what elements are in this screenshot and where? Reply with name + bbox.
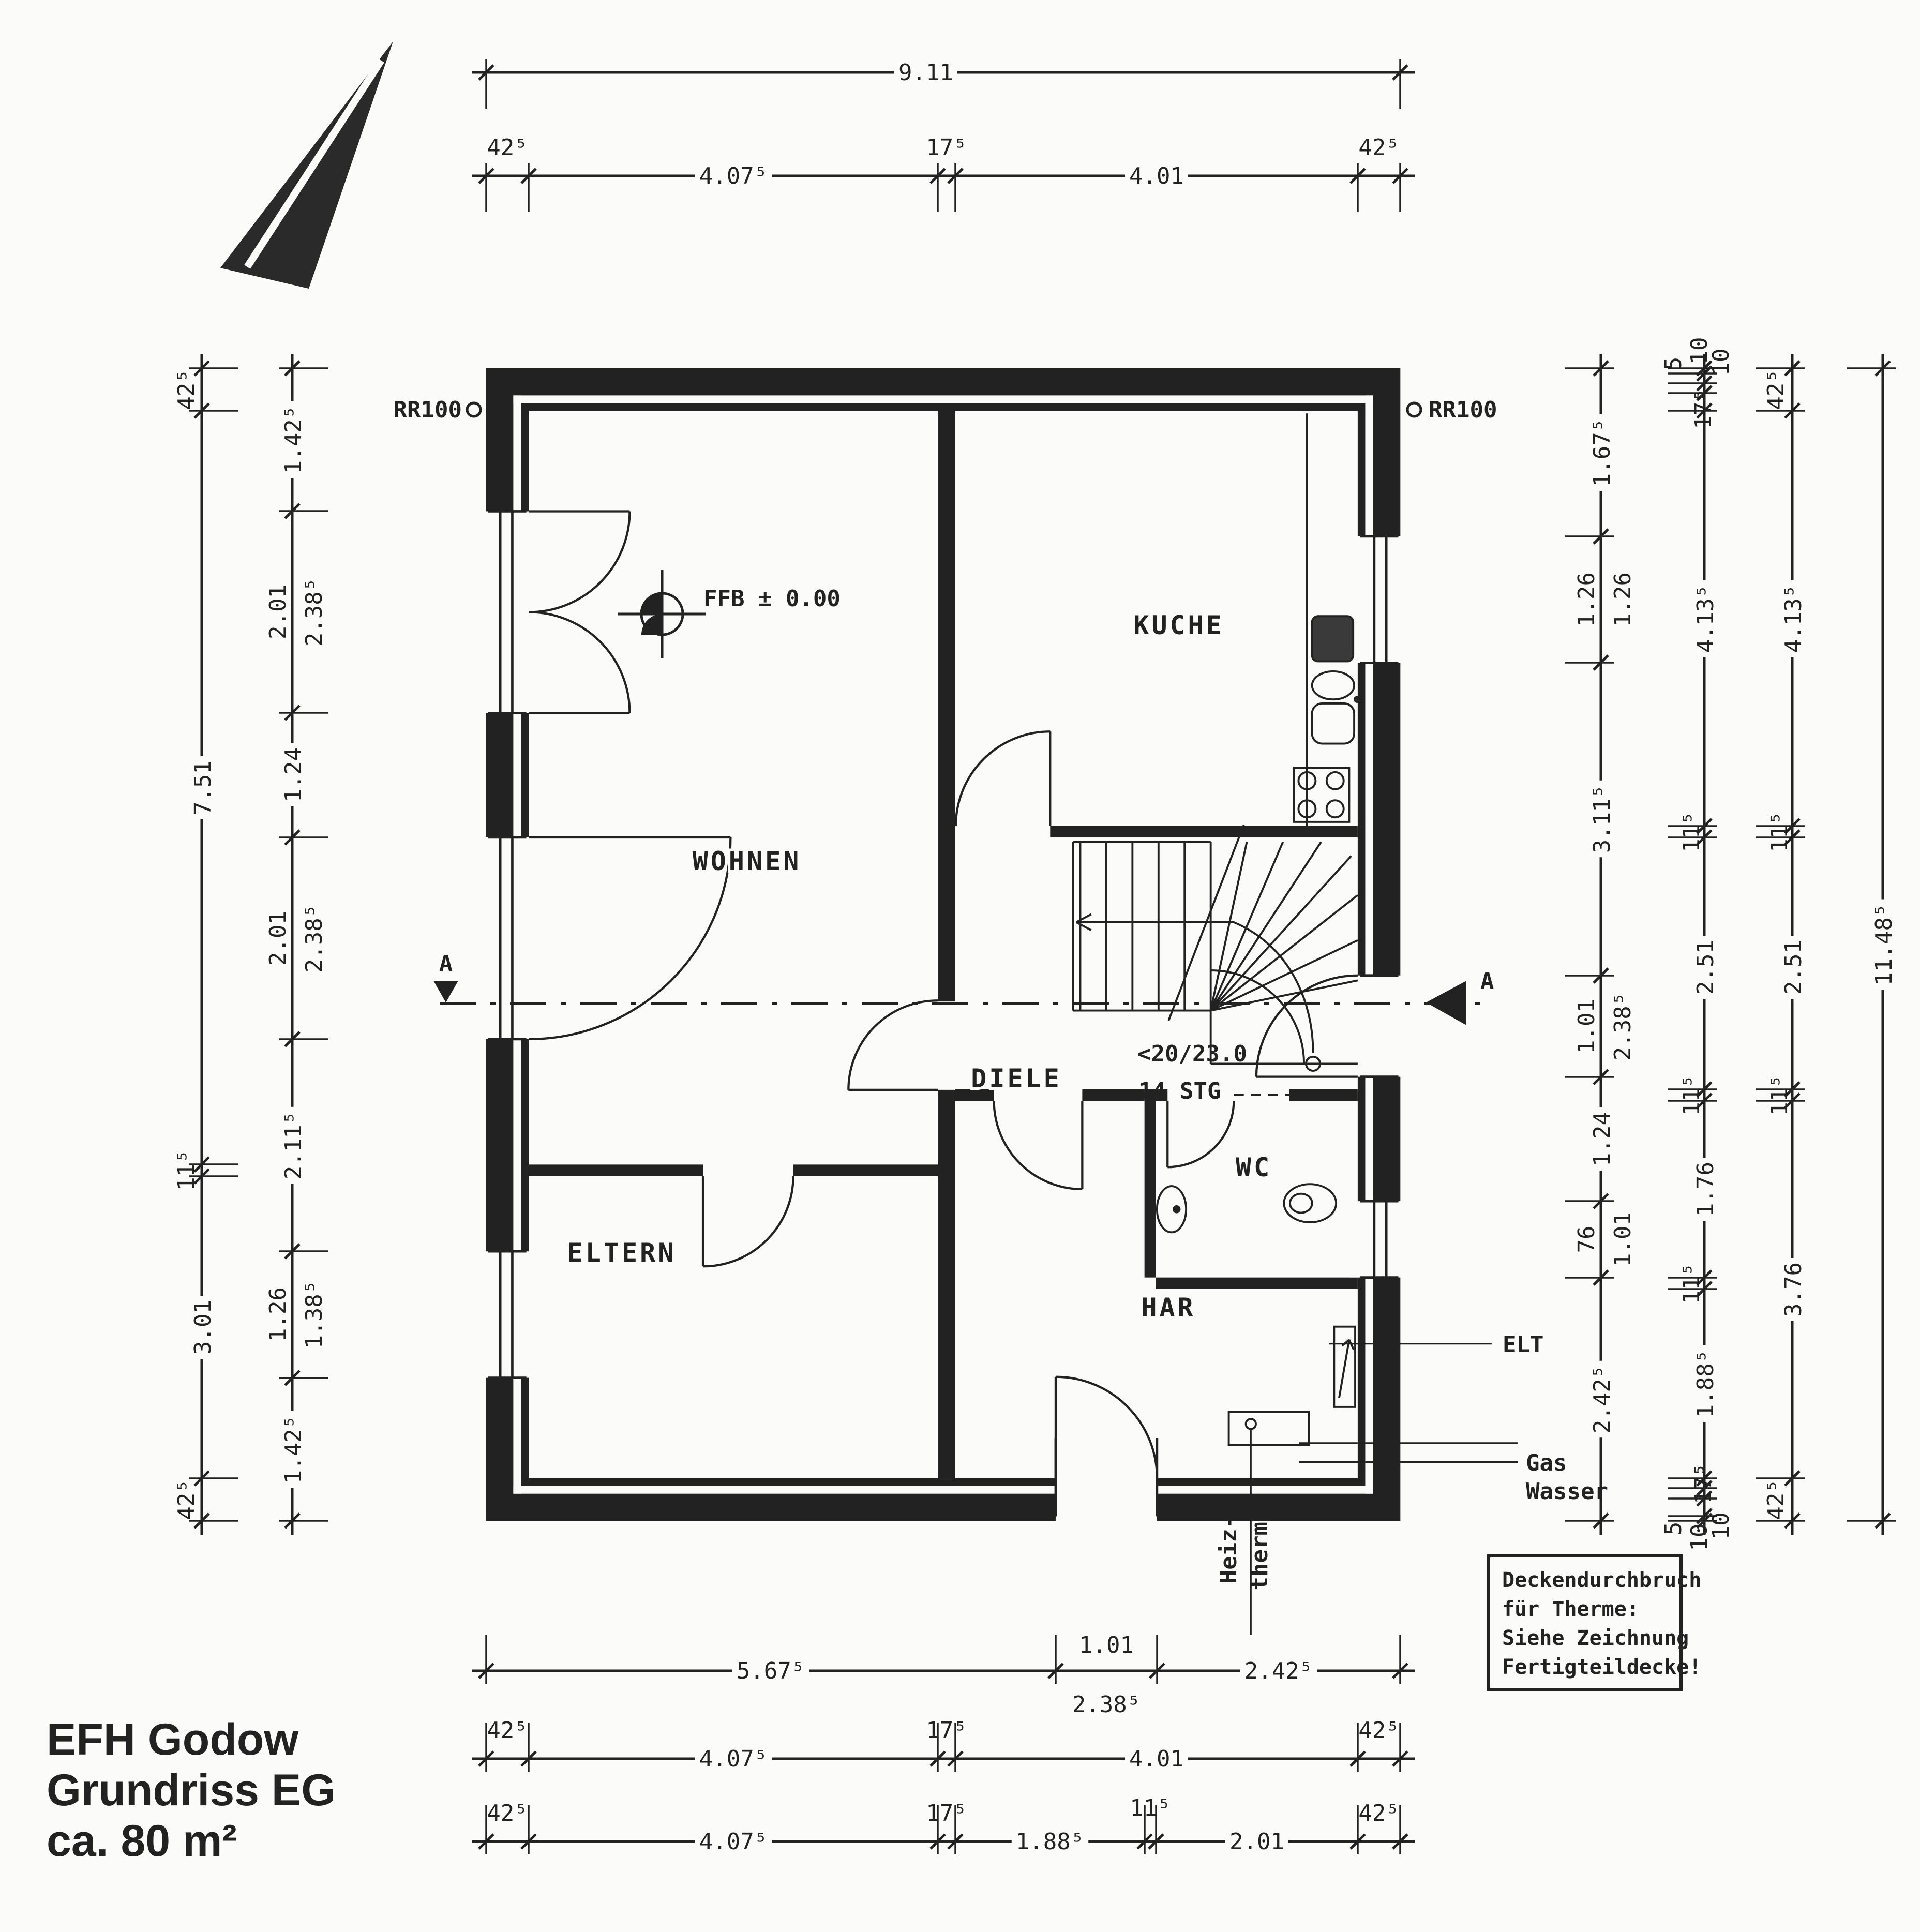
dim-label: 42⁵ [173, 369, 200, 410]
dim-label: 11.48⁵ [1870, 900, 1898, 990]
dim-label: 5.67⁵ [732, 1657, 809, 1685]
dim-label: 42⁵ [1358, 1800, 1399, 1826]
room-label-kueche: KUCHE [1133, 610, 1224, 640]
dim-label: 1.24 [1588, 1107, 1616, 1171]
svg-text:42⁵: 42⁵ [1358, 1800, 1399, 1826]
dim-label: 42⁵ [1358, 134, 1399, 161]
svg-text:4.01: 4.01 [1129, 163, 1184, 189]
svg-text:17⁵: 17⁵ [926, 1717, 967, 1744]
dim-label: 4.13⁵ [1691, 580, 1720, 657]
svg-text:1.01: 1.01 [1079, 1632, 1134, 1658]
dim-label: 11⁵ [1678, 1263, 1705, 1304]
svg-text:5: 5 [1660, 357, 1687, 371]
dim-label: 7.51 [189, 756, 217, 819]
interior-walls [529, 411, 1357, 1478]
dim-label: 42⁵ [487, 1717, 528, 1744]
gas-water-pipes [1299, 1443, 1518, 1462]
heater-label-2: therme [1247, 1508, 1273, 1591]
dim-label: 2.01 [265, 585, 291, 639]
svg-text:9.11: 9.11 [898, 59, 953, 86]
svg-text:11⁵: 11⁵ [1678, 1074, 1705, 1115]
svg-text:2.42⁵: 2.42⁵ [1244, 1658, 1313, 1684]
dim-label: 1.01 [1079, 1632, 1134, 1658]
dim-label: 2.38⁵ [301, 578, 327, 646]
downpipe-right-icon [1407, 403, 1421, 416]
sink-tap [1355, 697, 1360, 702]
svg-text:1.67⁵: 1.67⁵ [1589, 418, 1615, 487]
downpipe-right-label: RR100 [1429, 397, 1497, 423]
dim-label: 2.51 [1779, 936, 1808, 999]
downpipe-left-label: RR100 [394, 397, 462, 423]
toilet [1284, 1184, 1336, 1222]
level-mark-icon [618, 570, 706, 658]
svg-text:4.13⁵: 4.13⁵ [1780, 585, 1807, 653]
dim-label: 2.42⁵ [1588, 1361, 1616, 1437]
svg-text:4.07⁵: 4.07⁵ [699, 1829, 768, 1855]
dim-label: 2.38⁵ [301, 904, 327, 972]
dim-label: 1.76 [1691, 1158, 1720, 1221]
note-box: Deckendurchbruch für Therme: Siehe Zeich… [1489, 1556, 1701, 1689]
dim-label: 1.38⁵ [301, 1280, 327, 1349]
svg-text:11.48⁵: 11.48⁵ [1871, 904, 1897, 986]
overlay: A A FFB ± 0.00 RR100 RR100 WOHNEN KUCHE … [47, 41, 1701, 1866]
svg-text:42⁵: 42⁵ [1358, 1717, 1399, 1744]
svg-text:42⁵: 42⁵ [1763, 369, 1789, 410]
svg-text:11⁵: 11⁵ [1678, 1263, 1705, 1304]
dim-label: 1.01 [1610, 1212, 1636, 1267]
dim-label: 2.38⁵ [1610, 992, 1636, 1060]
dim-label: 42⁵ [1763, 1479, 1789, 1520]
wasser-label: Wasser [1526, 1478, 1608, 1505]
dim-label: 17⁵ [926, 1800, 967, 1826]
dim-label: 17⁵ [926, 1717, 967, 1744]
dim-label: 42⁵ [487, 134, 528, 161]
room-label-diele: DIELE [971, 1064, 1062, 1094]
dim-label: 2.51 [1691, 936, 1720, 999]
svg-text:11⁵: 11⁵ [173, 1149, 200, 1190]
svg-text:42⁵: 42⁵ [173, 1479, 200, 1520]
note-line-1: Deckendurchbruch [1502, 1568, 1701, 1592]
svg-text:2.38⁵: 2.38⁵ [301, 904, 327, 972]
svg-text:1.26: 1.26 [1610, 572, 1636, 627]
dim-label: 3.11⁵ [1588, 781, 1616, 857]
svg-text:11⁵: 11⁵ [1766, 1074, 1793, 1115]
dim-label: 5 [1660, 357, 1687, 371]
dim-label: 17⁵ [926, 134, 967, 161]
svg-text:10: 10 [1708, 1512, 1734, 1540]
dim-label: 2.01 [265, 911, 291, 966]
dim-label: 4.13⁵ [1779, 580, 1808, 657]
dim-label: 11⁵ [1766, 811, 1793, 852]
dim-label: 3.01 [189, 1296, 217, 1359]
svg-text:4.07⁵: 4.07⁵ [699, 163, 768, 189]
section-line: A A [433, 951, 1495, 1025]
svg-text:1.01: 1.01 [1610, 1212, 1636, 1267]
svg-text:42⁵: 42⁵ [173, 369, 200, 410]
title-line-3: ca. 80 m² [47, 1816, 237, 1866]
wc-fixtures [1157, 1184, 1336, 1232]
drawing-sheet: A A FFB ± 0.00 RR100 RR100 WOHNEN KUCHE … [0, 0, 1920, 1932]
dim-label: 11⁵ [1678, 1074, 1705, 1115]
dim-label: 1.88⁵ [1012, 1828, 1088, 1856]
dim-label: 42⁵ [173, 1479, 200, 1520]
dim-label: 2.01 [1225, 1828, 1288, 1856]
sink-drainer [1312, 616, 1354, 661]
dim-label: 11⁵ [1766, 1074, 1793, 1115]
section-label-right: A [1480, 968, 1494, 995]
dim-label: 11⁵ [1130, 1795, 1171, 1821]
dim-label: 1.26 [1610, 572, 1636, 627]
heater-label-1: Heiz- [1216, 1515, 1242, 1583]
north-arrow-icon [220, 41, 393, 289]
section-marker-right-icon [1426, 981, 1466, 1025]
svg-text:11⁵: 11⁵ [1766, 811, 1793, 852]
dim-label: 42⁵ [1358, 1717, 1399, 1744]
stair-count-label: 14 STG [1139, 1078, 1221, 1104]
dim-label: 42⁵ [487, 1800, 528, 1826]
dim-label: 1.26 [265, 1287, 291, 1342]
svg-text:1.38⁵: 1.38⁵ [301, 1280, 327, 1349]
kitchen-counter [1294, 413, 1360, 826]
svg-text:5.67⁵: 5.67⁵ [737, 1658, 805, 1684]
dim-label: 2.38⁵ [1072, 1691, 1141, 1718]
svg-text:2.51: 2.51 [1692, 940, 1719, 995]
note-line-4: Fertigteildecke! [1502, 1655, 1701, 1679]
stair-walk-line [1076, 914, 1313, 1053]
dim-label: 10 [1708, 1512, 1734, 1540]
sink-basin-oval [1312, 671, 1354, 699]
svg-text:10: 10 [1708, 349, 1734, 376]
title-block: EFH Godow Grundriss EG ca. 80 m² [47, 1715, 336, 1866]
svg-text:2.38⁵: 2.38⁵ [301, 578, 327, 646]
svg-text:3.76: 3.76 [1780, 1262, 1807, 1317]
wash-basin [1157, 1186, 1186, 1232]
dim-label: 17⁵ [1690, 388, 1717, 429]
svg-text:4.13⁵: 4.13⁵ [1692, 585, 1719, 653]
svg-text:76: 76 [1573, 1226, 1600, 1253]
svg-text:3.01: 3.01 [190, 1300, 216, 1355]
dim-label: 17⁵ [1690, 1463, 1717, 1504]
svg-text:1.42⁵: 1.42⁵ [280, 1415, 307, 1484]
svg-text:42⁵: 42⁵ [487, 1800, 528, 1826]
svg-text:3.11⁵: 3.11⁵ [1589, 785, 1615, 853]
svg-text:1.42⁵: 1.42⁵ [280, 406, 307, 474]
downpipe-left-icon [467, 403, 481, 416]
svg-text:11⁵: 11⁵ [1130, 1795, 1171, 1821]
svg-text:42⁵: 42⁵ [487, 1717, 528, 1744]
room-label-wohnen: WOHNEN [693, 846, 802, 876]
dim-label: 42⁵ [1763, 369, 1789, 410]
svg-text:1.26: 1.26 [1573, 572, 1600, 627]
svg-text:17⁵: 17⁵ [1690, 1463, 1717, 1504]
svg-text:42⁵: 42⁵ [1763, 1479, 1789, 1520]
dim-label: 4.01 [1125, 162, 1188, 190]
svg-text:42⁵: 42⁵ [487, 134, 528, 161]
svg-text:2.01: 2.01 [1229, 1829, 1284, 1855]
dim-label: 11⁵ [173, 1149, 200, 1190]
stair-pitch-label: <20/23.0 [1137, 1041, 1247, 1067]
dim-label: 2.42⁵ [1240, 1657, 1317, 1685]
svg-text:1.24: 1.24 [280, 747, 307, 802]
svg-text:1.88⁵: 1.88⁵ [1016, 1829, 1084, 1855]
note-line-3: Siehe Zeichnung [1502, 1626, 1689, 1650]
svg-text:2.38⁵: 2.38⁵ [1610, 992, 1636, 1060]
room-label-wc: WC [1236, 1152, 1272, 1182]
note-line-2: für Therme: [1502, 1597, 1639, 1621]
svg-text:4.07⁵: 4.07⁵ [699, 1746, 768, 1772]
svg-text:11⁵: 11⁵ [1678, 811, 1705, 852]
dim-label: 4.07⁵ [695, 162, 772, 190]
title-line-2: Grundriss EG [47, 1765, 336, 1815]
svg-text:1.26: 1.26 [265, 1287, 291, 1342]
svg-text:17⁵: 17⁵ [926, 1800, 967, 1826]
gas-label: Gas [1526, 1450, 1567, 1476]
svg-text:17⁵: 17⁵ [926, 134, 967, 161]
svg-text:2.01: 2.01 [265, 585, 291, 639]
room-label-eltern: ELTERN [567, 1238, 677, 1268]
dim-label: 5 [1660, 1522, 1687, 1536]
dim-label: 11⁵ [1678, 811, 1705, 852]
dim-label: 4.01 [1125, 1745, 1188, 1773]
dim-label: 1.67⁵ [1588, 414, 1616, 491]
svg-text:1.01: 1.01 [1573, 999, 1600, 1054]
dim-label: 9.11 [894, 58, 957, 87]
svg-text:1.24: 1.24 [1589, 1112, 1615, 1166]
svg-text:2.01: 2.01 [265, 911, 291, 966]
dim-label: 1.42⁵ [279, 401, 308, 478]
dim-label: 4.07⁵ [695, 1745, 772, 1773]
dim-label: 2.11⁵ [279, 1107, 308, 1184]
level-mark-label: FFB ± 0.00 [703, 586, 841, 612]
svg-text:5: 5 [1660, 1522, 1687, 1536]
svg-text:7.51: 7.51 [190, 760, 216, 815]
svg-text:17⁵: 17⁵ [1690, 388, 1717, 429]
elt-label: ELT [1503, 1331, 1543, 1358]
elt-arrow [1339, 1340, 1354, 1398]
dim-label: 1.42⁵ [279, 1411, 308, 1488]
dim-label: 1.26 [1573, 572, 1600, 627]
sink-basin-square [1312, 703, 1354, 744]
svg-text:1.76: 1.76 [1692, 1162, 1719, 1217]
building [478, 368, 1518, 1635]
svg-text:42⁵: 42⁵ [1358, 134, 1399, 161]
floor-plan-svg: A A FFB ± 0.00 RR100 RR100 WOHNEN KUCHE … [0, 0, 1920, 1932]
svg-text:2.51: 2.51 [1780, 940, 1807, 995]
svg-text:2.38⁵: 2.38⁵ [1072, 1691, 1141, 1718]
room-label-har: HAR [1141, 1293, 1195, 1323]
dim-label: 3.76 [1779, 1258, 1808, 1321]
therme-unit [1229, 1412, 1309, 1445]
dim-label: 1.88⁵ [1691, 1345, 1720, 1422]
svg-text:1.88⁵: 1.88⁵ [1692, 1350, 1719, 1418]
dim-label: 1.01 [1573, 999, 1600, 1054]
svg-text:2.11⁵: 2.11⁵ [280, 1111, 307, 1179]
title-line-1: EFH Godow [47, 1715, 299, 1764]
svg-text:2.42⁵: 2.42⁵ [1589, 1365, 1615, 1433]
section-label-left: A [439, 951, 453, 977]
dim-label: 76 [1573, 1226, 1600, 1253]
dim-label: 10 [1708, 349, 1734, 376]
dim-label: 1.24 [279, 743, 308, 806]
section-marker-left-icon [433, 981, 458, 1002]
svg-text:4.01: 4.01 [1129, 1746, 1184, 1772]
dim-label: 4.07⁵ [695, 1828, 772, 1856]
stair [1073, 825, 1358, 1071]
